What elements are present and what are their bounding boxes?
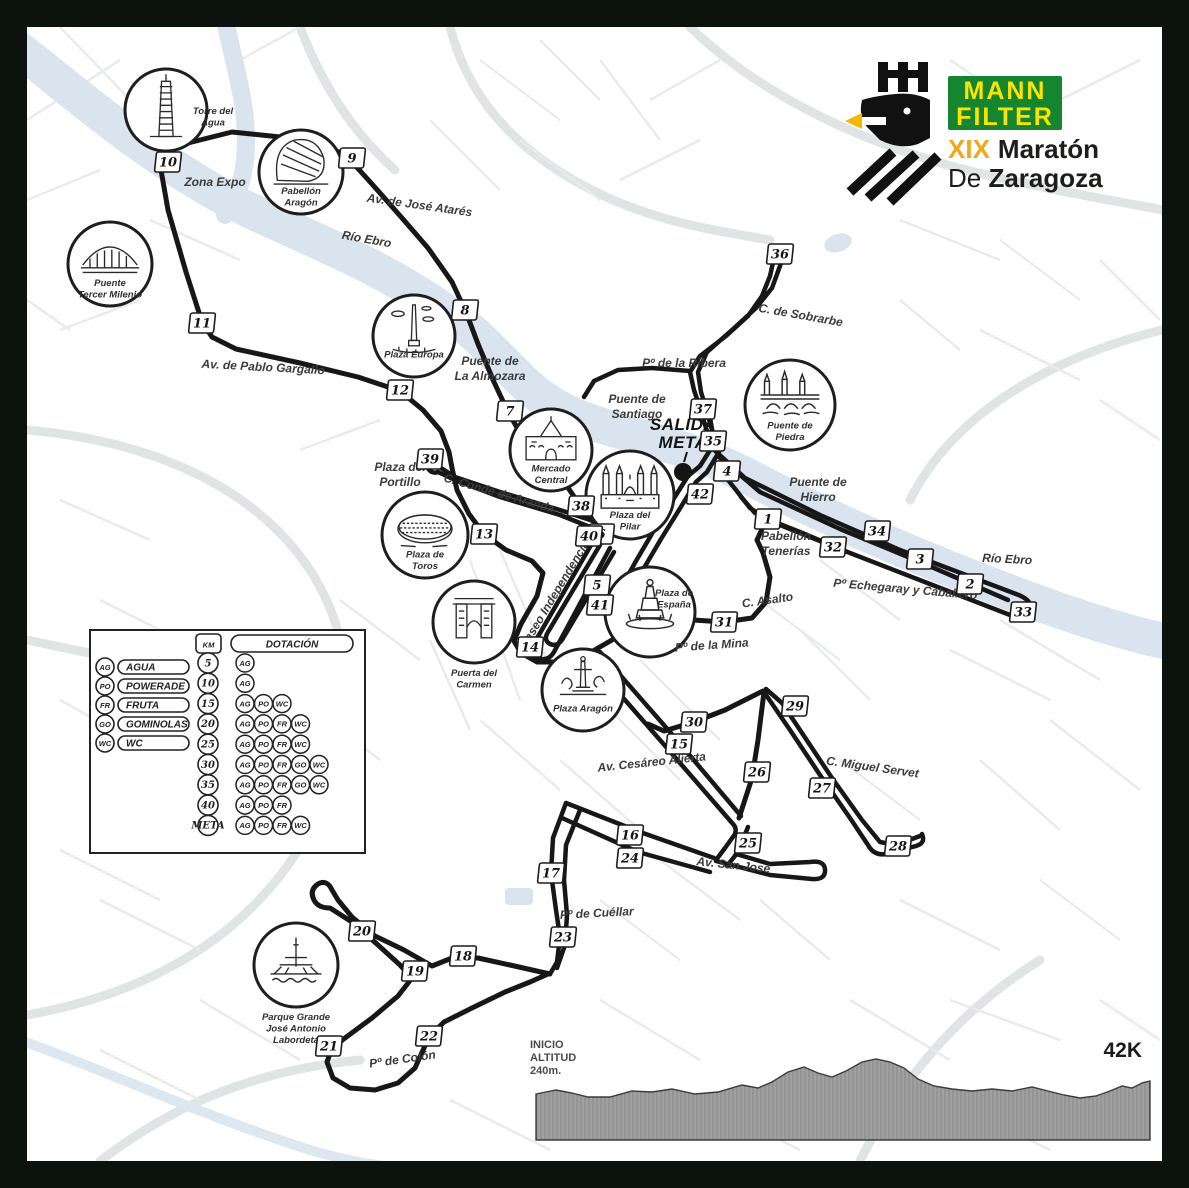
km-marker-number: 1 [763, 513, 772, 528]
legend-service-code: PO [258, 781, 269, 790]
km-marker-5: 5 [583, 575, 610, 595]
legend-row-km-5: 5 [205, 658, 212, 669]
map-canvas: INICIO ALTITUD 240m. 42K [0, 0, 1189, 1188]
parque-grande-caption: Parque Grande [262, 1012, 331, 1023]
legend-service-code: AG [238, 679, 250, 688]
elevation-start-label-1: INICIO [530, 1039, 564, 1051]
km-marker-11: 11 [188, 313, 215, 333]
legend-service-code: FR [277, 781, 288, 790]
plaza-de-toros-caption: Toros [412, 561, 438, 572]
street-label: Puente de [789, 475, 847, 489]
elevation-start-label-3: 240m. [530, 1065, 561, 1077]
km-marker-number: 40 [580, 530, 598, 545]
legend-key-label-AG: AGUA [125, 663, 155, 674]
km-marker-17: 17 [537, 863, 564, 883]
km-marker-24: 24 [616, 848, 643, 868]
legend-service-code: AG [238, 699, 250, 708]
mercado-central: MercadoCentral [510, 409, 592, 491]
km-marker-12: 12 [386, 380, 413, 400]
legend-service-code: GO [295, 760, 307, 769]
street-label: Río Ebro [982, 551, 1033, 568]
legend-row-km-35: 35 [201, 780, 215, 791]
km-marker-41: 41 [586, 595, 613, 615]
km-marker-13: 13 [470, 524, 497, 544]
puente-tercer-milenio-caption: Puente [94, 278, 126, 289]
km-marker-20: 20 [348, 921, 375, 941]
km-marker-number: 32 [824, 541, 842, 556]
brand-line2: FILTER [956, 103, 1054, 131]
legend-row-km-30: 30 [201, 760, 215, 771]
legend-key-code: WC [99, 739, 112, 748]
km-marker-number: 16 [621, 829, 639, 844]
title-de: De [948, 163, 988, 193]
title-word: Maratón [998, 134, 1099, 164]
puerta-del-carmen-circle [433, 581, 515, 663]
legend-km-header: KM [203, 641, 215, 650]
km-marker-15: 15 [665, 734, 692, 754]
street-label: Tenerías [762, 544, 811, 558]
parque-grande-caption: José Antonio [266, 1024, 326, 1035]
legend-service-code: FR [277, 801, 288, 810]
street-label: Puente de [461, 354, 519, 368]
parque-grande: Parque GrandeJosé AntonioLabordeta [254, 923, 338, 1046]
legend-service-code: AG [238, 720, 250, 729]
km-marker-number: 27 [812, 782, 831, 797]
legend-service-code: PO [258, 821, 269, 830]
legend-service-code: WC [294, 720, 307, 729]
puerta-del-carmen-caption: Carmen [456, 680, 492, 691]
street-label: Santiago [612, 407, 663, 421]
km-marker-number: 35 [704, 435, 722, 450]
legend-service-code: AG [238, 760, 250, 769]
plaza-de-espana-caption: Plaza de [655, 588, 694, 599]
legend: AGAGUAPOPOWERADEFRFRUTAGOGOMINOLASWCWCKM… [90, 630, 365, 853]
km-marker-28: 28 [884, 836, 911, 856]
plaza-europa-caption: Plaza Europa [384, 349, 444, 360]
km-marker-number: 11 [193, 317, 211, 332]
km-marker-34: 34 [863, 521, 890, 541]
legend-key-code: PO [100, 682, 111, 691]
km-marker-number: 30 [685, 716, 703, 731]
km-marker-25: 25 [734, 833, 761, 853]
mercado-central-caption: Central [535, 475, 568, 486]
plaza-de-espana-caption: España [657, 600, 691, 611]
km-marker-number: 42 [691, 488, 709, 503]
plaza-del-pilar-caption: Plaza del [610, 510, 651, 521]
km-marker-number: 21 [319, 1040, 338, 1055]
km-marker-number: 15 [670, 738, 688, 753]
legend-service-code: AG [238, 801, 250, 810]
km-marker-number: 7 [505, 405, 514, 420]
km-marker-31: 31 [710, 612, 737, 632]
km-marker-number: 10 [159, 156, 177, 171]
km-marker-18: 18 [449, 946, 476, 966]
km-marker-2: 2 [956, 574, 983, 594]
puente-tercer-milenio: PuenteTercer Milenio [68, 222, 152, 306]
legend-service-code: PO [258, 699, 269, 708]
legend-key-label-FR: FRUTA [126, 701, 159, 712]
km-marker-7: 7 [496, 401, 523, 421]
km-marker-number: 9 [347, 152, 356, 167]
km-marker-10: 10 [154, 152, 181, 172]
km-marker-35: 35 [699, 431, 726, 451]
km-marker-number: 12 [391, 384, 409, 399]
plaza-europa: Plaza Europa [373, 295, 455, 377]
event-title-line2: De Zaragoza [948, 163, 1103, 193]
km-marker-number: 13 [475, 528, 493, 543]
km-marker-number: 22 [419, 1030, 438, 1045]
km-marker-number: 4 [722, 465, 731, 480]
pabellon-aragon-caption: Aragón [283, 197, 317, 208]
km-marker-27: 27 [808, 778, 835, 798]
km-marker-26: 26 [743, 762, 770, 782]
mercado-central-caption: Mercado [531, 463, 570, 474]
legend-service-code: FR [277, 760, 288, 769]
street-label: Pº de la Ribera [642, 356, 726, 370]
km-marker-number: 14 [521, 641, 539, 656]
legend-row-km-15: 15 [201, 699, 215, 710]
pabellon-aragon: PabellónAragón [259, 130, 343, 214]
street-label: Puente de [608, 392, 666, 406]
legend-service-code: GO [295, 781, 307, 790]
legend-row-km-20: 20 [200, 719, 215, 730]
legend-service-code: WC [313, 781, 326, 790]
legend-service-code: AG [238, 821, 250, 830]
km-marker-number: 26 [747, 766, 766, 781]
km-marker-23: 23 [549, 927, 576, 947]
legend-key-code: GO [99, 720, 111, 729]
plaza-del-pilar-caption: Pilar [620, 521, 642, 532]
km-marker-1: 1 [754, 509, 781, 529]
legend-key-label-GO: GOMINOLAS [126, 720, 188, 731]
km-marker-number: 5 [592, 579, 601, 594]
km-marker-8: 8 [451, 300, 478, 320]
legend-row-km-40: 40 [201, 800, 215, 811]
street-label: Zona Expo [183, 175, 245, 189]
legend-key-code: FR [100, 701, 111, 710]
plaza-aragon: Plaza Aragón [542, 649, 624, 731]
km-marker-42: 42 [686, 484, 713, 504]
legend-row-km-META: META [190, 821, 225, 832]
km-marker-number: 37 [694, 403, 712, 418]
km-marker-number: 33 [1014, 606, 1032, 621]
km-marker-37: 37 [689, 399, 716, 419]
puente-de-piedra: Puente dePiedra [745, 360, 835, 450]
km-marker-21: 21 [315, 1036, 342, 1056]
start-dot [674, 463, 692, 481]
legend-service-code: AG [238, 659, 250, 668]
plaza-de-toros: Plaza deToros [382, 492, 468, 578]
plaza-de-toros-caption: Plaza de [406, 549, 445, 560]
km-marker-number: 39 [421, 453, 439, 468]
km-marker-number: 2 [964, 578, 974, 593]
km-marker-14: 14 [516, 637, 543, 657]
puente-tercer-milenio-caption: Tercer Milenio [78, 289, 142, 300]
plaza-aragon-caption: Plaza Aragón [553, 703, 613, 714]
legend-service-code: AG [238, 740, 250, 749]
pabellon-aragon-caption: Pabellón [281, 186, 321, 197]
km-marker-number: 34 [868, 525, 886, 540]
torre-del-agua-caption: Torre del [193, 106, 234, 117]
km-marker-33: 33 [1009, 602, 1036, 622]
legend-service-code: WC [294, 740, 307, 749]
street-label: Portillo [379, 475, 420, 489]
km-marker-9: 9 [338, 148, 365, 168]
torre-del-agua-caption: Agua [200, 118, 225, 129]
km-marker-number: 19 [406, 965, 424, 980]
legend-service-code: PO [258, 740, 269, 749]
km-marker-number: 18 [454, 950, 472, 965]
km-marker-16: 16 [616, 825, 643, 845]
km-marker-number: 24 [620, 852, 639, 867]
plaza-europa-circle [373, 295, 455, 377]
km-marker-40: 40 [575, 526, 602, 546]
km-marker-number: 38 [572, 500, 590, 515]
legend-key-code: AG [98, 663, 110, 672]
legend-key-label-PO: POWERADE [126, 682, 185, 693]
km-marker-32: 32 [819, 537, 846, 557]
km-marker-number: 25 [738, 837, 757, 852]
legend-dotacion-header: DOTACIÓN [266, 638, 319, 651]
km-marker-number: 23 [553, 931, 572, 946]
km-marker-number: 3 [915, 553, 924, 568]
km-marker-number: 8 [460, 304, 469, 319]
marathon-map-poster: INICIO ALTITUD 240m. 42K [0, 0, 1189, 1188]
km-marker-36: 36 [766, 244, 793, 264]
legend-service-code: AG [238, 781, 250, 790]
street-label: Pabellón [761, 529, 811, 543]
street-label: La Almozara [455, 369, 526, 383]
legend-service-code: FR [277, 720, 288, 729]
puerta-del-carmen-caption: Puerta del [451, 668, 497, 679]
km-marker-38: 38 [567, 496, 594, 516]
km-marker-number: 31 [715, 616, 733, 631]
km-marker-30: 30 [680, 712, 707, 732]
legend-service-code: WC [276, 699, 289, 708]
event-title-line1: XIXMaratón [948, 134, 1099, 164]
km-marker-3: 3 [906, 549, 933, 569]
edition-number: XIX [948, 134, 991, 164]
km-marker-number: 20 [352, 925, 371, 940]
street-label: Hierro [800, 490, 835, 504]
distance-label: 42K [1103, 1039, 1142, 1062]
legend-service-code: WC [313, 760, 326, 769]
brand-line1: MANN [964, 77, 1047, 105]
km-marker-number: 36 [771, 248, 789, 263]
parque-grande-caption: Labordeta [273, 1035, 319, 1046]
legend-row-km-25: 25 [200, 740, 215, 751]
km-marker-19: 19 [401, 961, 428, 981]
elevation-start-label-2: ALTITUD [530, 1052, 576, 1064]
legend-service-code: PO [258, 801, 269, 810]
legend-service-code: PO [258, 760, 269, 769]
title-city: Zaragoza [988, 163, 1103, 193]
km-marker-number: 17 [542, 867, 560, 882]
legend-service-code: WC [294, 821, 307, 830]
km-marker-number: 29 [785, 700, 804, 715]
legend-service-code: FR [277, 821, 288, 830]
puente-de-piedra-caption: Puente de [767, 420, 813, 431]
km-marker-number: 41 [591, 599, 609, 614]
legend-service-code: FR [277, 740, 288, 749]
puente-de-piedra-caption: Piedra [775, 432, 804, 443]
km-marker-39: 39 [416, 449, 443, 469]
legend-row-km-10: 10 [201, 679, 215, 690]
km-marker-4: 4 [713, 461, 740, 481]
legend-key-label-WC: WC [126, 739, 143, 750]
km-marker-number: 28 [888, 840, 907, 855]
km-marker-29: 29 [781, 696, 808, 716]
km-marker-22: 22 [415, 1026, 442, 1046]
legend-service-code: PO [258, 720, 269, 729]
